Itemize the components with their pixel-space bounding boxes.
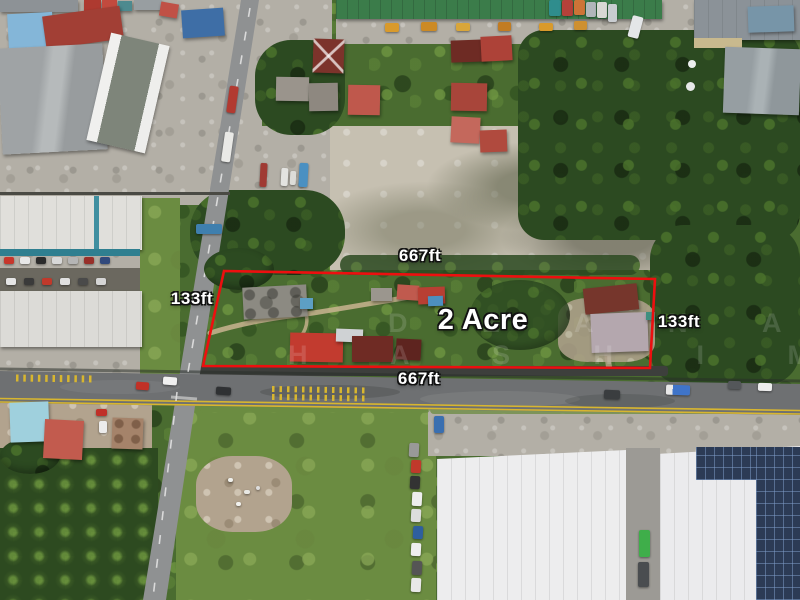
car xyxy=(6,278,16,285)
solar-panel-array xyxy=(756,447,800,600)
blue-truck xyxy=(666,385,690,396)
gray-roof-house xyxy=(309,83,338,112)
car xyxy=(68,257,78,264)
dark-car xyxy=(216,386,232,395)
car xyxy=(96,278,106,285)
car xyxy=(52,257,62,264)
roof-vent xyxy=(688,60,696,68)
van xyxy=(411,543,422,557)
tree-canopy xyxy=(204,248,274,290)
big-warehouse-roof xyxy=(723,47,800,116)
car xyxy=(99,421,107,433)
container-red xyxy=(562,0,573,16)
car xyxy=(60,278,70,285)
container xyxy=(259,163,267,187)
pallet-stack xyxy=(421,22,437,31)
tree-canopy xyxy=(470,280,570,350)
aerial-photo: D Z A N A W H A S H I M 667ft 667ft 133f… xyxy=(0,0,800,600)
blue-gray-roof xyxy=(748,5,795,33)
factory-roof xyxy=(0,291,142,347)
maroon-roof-house xyxy=(352,336,393,362)
factory-roof xyxy=(0,196,142,250)
gray-roof xyxy=(134,0,162,10)
container xyxy=(281,168,289,186)
gray-roof-house xyxy=(276,77,309,102)
pallet-stack xyxy=(498,22,511,31)
car xyxy=(20,257,30,264)
maroon-roof-house xyxy=(395,338,421,360)
van xyxy=(411,578,422,593)
container-blue xyxy=(298,163,308,187)
red-roof xyxy=(159,2,179,19)
boundary-wall xyxy=(0,192,230,195)
car xyxy=(410,476,421,490)
container-teal xyxy=(549,0,561,16)
car xyxy=(36,257,46,264)
van xyxy=(409,443,420,458)
car xyxy=(42,278,52,285)
debris xyxy=(236,502,241,506)
weathered-building xyxy=(242,284,308,319)
salmon-roof-house xyxy=(397,284,420,300)
blue-tarp xyxy=(300,298,313,309)
house-x-pattern-roof xyxy=(312,38,344,73)
roof-strip xyxy=(0,0,78,12)
roof-vent xyxy=(686,82,695,91)
red-roof-house xyxy=(451,83,487,112)
awning xyxy=(0,249,140,256)
van xyxy=(412,492,423,507)
van xyxy=(411,509,422,523)
debris xyxy=(244,490,250,494)
car xyxy=(84,257,94,264)
dark-truck xyxy=(638,562,649,587)
blue-truck xyxy=(434,416,444,433)
stop-line xyxy=(171,397,197,399)
car xyxy=(100,257,110,264)
container xyxy=(290,171,297,185)
car xyxy=(96,409,107,416)
car xyxy=(413,526,424,540)
car xyxy=(24,278,34,285)
debris xyxy=(228,478,233,482)
white-car xyxy=(163,377,178,386)
container-white xyxy=(597,2,607,18)
pallet-stack xyxy=(385,23,399,32)
container-gray xyxy=(586,2,596,17)
pink-roof-house xyxy=(450,116,480,143)
road-patch xyxy=(565,394,675,408)
truck xyxy=(608,4,617,22)
pallet-stack xyxy=(574,21,587,30)
teal-roof-stripe xyxy=(94,196,99,250)
white-car xyxy=(758,383,772,391)
red-car xyxy=(136,382,150,391)
salmon-roof-house xyxy=(348,85,381,116)
car xyxy=(78,278,88,285)
truck xyxy=(412,561,423,576)
dark-van xyxy=(728,381,741,389)
blue-roof xyxy=(181,8,225,39)
lavender-hip-roof-house xyxy=(590,312,648,353)
red-roof-house xyxy=(480,130,508,153)
side-road-south xyxy=(143,384,198,600)
warehouse-roof-left xyxy=(437,450,626,600)
teal-roof xyxy=(118,1,132,11)
dark-car xyxy=(604,390,620,400)
teal-shed xyxy=(646,312,655,320)
container-blue xyxy=(196,224,222,234)
bush-row xyxy=(340,255,640,275)
debris xyxy=(256,486,260,490)
rusty-roof-building xyxy=(111,417,143,449)
salmon-roof-house xyxy=(43,419,84,460)
car xyxy=(411,460,422,474)
car xyxy=(4,257,14,264)
red-roof-house xyxy=(480,35,512,62)
blue-structure xyxy=(428,296,443,307)
pallet-stack xyxy=(456,23,470,31)
container-orange xyxy=(574,0,585,15)
green-truck xyxy=(639,530,650,557)
pallet-stack xyxy=(539,23,553,31)
shed-roof xyxy=(371,288,392,301)
